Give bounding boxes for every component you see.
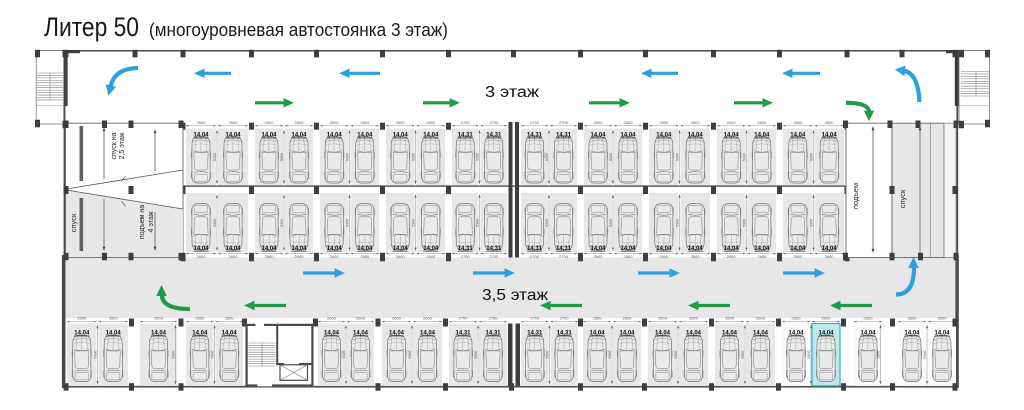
svg-text:14,31: 14,31 — [557, 331, 573, 337]
svg-text:14,31: 14,31 — [486, 133, 502, 139]
svg-text:5300: 5300 — [213, 153, 217, 161]
svg-text:5300: 5300 — [609, 219, 613, 227]
svg-text:14,04: 14,04 — [656, 246, 672, 252]
svg-text:5300: 5300 — [545, 153, 549, 161]
svg-text:14,04: 14,04 — [74, 331, 90, 337]
svg-text:14,31: 14,31 — [458, 246, 474, 252]
svg-text:2600: 2600 — [727, 120, 737, 125]
svg-text:2600: 2600 — [109, 316, 119, 321]
svg-text:2600: 2600 — [864, 316, 874, 321]
svg-text:14,04: 14,04 — [655, 331, 671, 337]
svg-text:5300: 5300 — [743, 219, 747, 227]
svg-text:3 этаж: 3 этаж — [485, 84, 540, 101]
svg-text:5300: 5300 — [546, 351, 550, 359]
svg-text:2600: 2600 — [756, 316, 766, 321]
svg-text:14,04: 14,04 — [327, 133, 343, 139]
svg-text:14,04: 14,04 — [688, 246, 704, 252]
svg-text:2600: 2600 — [593, 316, 603, 321]
svg-text:2600: 2600 — [727, 254, 737, 259]
svg-text:5300: 5300 — [172, 351, 176, 359]
svg-text:14,31: 14,31 — [527, 133, 543, 139]
svg-text:5300: 5300 — [94, 351, 98, 359]
svg-text:14,31: 14,31 — [556, 133, 572, 139]
svg-text:2600: 2600 — [757, 254, 767, 259]
svg-text:14,04: 14,04 — [724, 133, 740, 139]
svg-text:5300: 5300 — [342, 351, 346, 359]
svg-text:2600: 2600 — [658, 316, 668, 321]
svg-text:14,04: 14,04 — [619, 331, 635, 337]
svg-text:5300: 5300 — [346, 219, 350, 227]
svg-text:14,04: 14,04 — [818, 331, 834, 337]
svg-text:5300: 5300 — [474, 351, 478, 359]
svg-text:14,04: 14,04 — [291, 246, 307, 252]
svg-text:2700: 2700 — [461, 120, 471, 125]
svg-text:2700: 2700 — [530, 254, 540, 259]
svg-text:14,04: 14,04 — [357, 246, 373, 252]
svg-text:спуск: спуск — [898, 189, 907, 208]
svg-text:2600: 2600 — [330, 254, 340, 259]
svg-text:2600: 2600 — [825, 254, 835, 259]
svg-text:спуск на: спуск на — [111, 132, 118, 159]
svg-text:2600: 2600 — [594, 120, 604, 125]
svg-text:14,04: 14,04 — [620, 246, 636, 252]
svg-text:2700: 2700 — [489, 254, 499, 259]
svg-text:2600: 2600 — [725, 316, 735, 321]
svg-text:2600: 2600 — [265, 120, 275, 125]
svg-text:2600: 2600 — [77, 316, 87, 321]
svg-text:14,04: 14,04 — [754, 246, 770, 252]
svg-text:2700: 2700 — [559, 120, 569, 125]
svg-text:2700: 2700 — [459, 316, 469, 321]
svg-text:5300: 5300 — [676, 153, 680, 161]
svg-text:14,04: 14,04 — [151, 331, 167, 337]
svg-text:14,04: 14,04 — [324, 331, 340, 337]
svg-text:2600: 2600 — [623, 316, 633, 321]
svg-text:2600: 2600 — [659, 120, 669, 125]
svg-text:14,04: 14,04 — [934, 331, 950, 337]
svg-text:14,04: 14,04 — [291, 133, 307, 139]
svg-text:2600: 2600 — [691, 120, 701, 125]
svg-text:2600: 2600 — [356, 316, 366, 321]
svg-text:2600: 2600 — [426, 120, 436, 125]
svg-text:14,04: 14,04 — [193, 246, 209, 252]
svg-text:5300: 5300 — [674, 351, 678, 359]
svg-text:5300: 5300 — [280, 153, 284, 161]
svg-text:2600: 2600 — [691, 254, 701, 259]
svg-text:14,04: 14,04 — [193, 133, 209, 139]
svg-text:5300: 5300 — [743, 153, 747, 161]
svg-text:14,04: 14,04 — [327, 246, 343, 252]
svg-text:2600: 2600 — [659, 254, 669, 259]
svg-text:14,04: 14,04 — [788, 331, 804, 337]
svg-text:14,04: 14,04 — [423, 246, 439, 252]
svg-text:2600: 2600 — [265, 254, 275, 259]
svg-text:2600: 2600 — [624, 254, 634, 259]
svg-text:5300: 5300 — [810, 153, 814, 161]
svg-text:5300: 5300 — [923, 351, 927, 359]
svg-text:14,04: 14,04 — [753, 331, 769, 337]
svg-text:2600: 2600 — [396, 120, 406, 125]
svg-text:2700: 2700 — [559, 254, 569, 259]
svg-text:5300: 5300 — [609, 153, 613, 161]
svg-text:5300: 5300 — [412, 153, 416, 161]
svg-text:14,04: 14,04 — [590, 133, 606, 139]
svg-text:14,31: 14,31 — [527, 246, 543, 252]
svg-text:5300: 5300 — [476, 153, 480, 161]
svg-text:2600: 2600 — [908, 316, 918, 321]
svg-text:14,04: 14,04 — [822, 133, 838, 139]
svg-text:2600: 2600 — [392, 316, 402, 321]
svg-text:2600: 2600 — [295, 254, 305, 259]
svg-text:2600: 2600 — [229, 120, 239, 125]
svg-text:5300: 5300 — [211, 351, 215, 359]
svg-text:14,04: 14,04 — [261, 133, 277, 139]
svg-text:5300: 5300 — [807, 351, 811, 359]
svg-text:2600: 2600 — [225, 316, 235, 321]
svg-text:14,04: 14,04 — [790, 133, 806, 139]
svg-text:14,04: 14,04 — [420, 331, 436, 337]
svg-text:подъем: подъем — [851, 183, 860, 209]
svg-text:2700: 2700 — [530, 316, 540, 321]
svg-text:5300: 5300 — [810, 219, 814, 227]
svg-text:2600: 2600 — [330, 120, 340, 125]
svg-text:14,31: 14,31 — [455, 331, 471, 337]
svg-text:14,04: 14,04 — [904, 331, 920, 337]
svg-text:2600: 2600 — [423, 316, 433, 321]
svg-text:14,04: 14,04 — [722, 331, 738, 337]
svg-text:2700: 2700 — [489, 316, 499, 321]
svg-text:2600: 2600 — [757, 120, 767, 125]
svg-text:2600: 2600 — [793, 254, 803, 259]
svg-text:14,04: 14,04 — [423, 133, 439, 139]
svg-text:2600: 2600 — [327, 316, 337, 321]
svg-text:5300: 5300 — [676, 219, 680, 227]
svg-text:5300: 5300 — [741, 351, 745, 359]
svg-text:2700: 2700 — [489, 120, 499, 125]
svg-text:14,04: 14,04 — [192, 331, 208, 337]
svg-text:14,04: 14,04 — [589, 331, 605, 337]
svg-text:14,31: 14,31 — [458, 133, 474, 139]
svg-text:2600: 2600 — [938, 316, 948, 321]
svg-text:14,31: 14,31 — [556, 246, 572, 252]
svg-text:2600: 2600 — [594, 254, 604, 259]
svg-text:14,04: 14,04 — [261, 246, 277, 252]
svg-text:14,04: 14,04 — [686, 331, 702, 337]
svg-text:14,04: 14,04 — [393, 133, 409, 139]
svg-text:2600: 2600 — [154, 316, 164, 321]
svg-text:2600: 2600 — [792, 316, 802, 321]
svg-text:2600: 2600 — [396, 254, 406, 259]
svg-text:2600: 2600 — [197, 120, 207, 125]
svg-text:14,31: 14,31 — [486, 246, 502, 252]
svg-text:3,5 этаж: 3,5 этаж — [482, 287, 548, 304]
svg-text:2600: 2600 — [825, 120, 835, 125]
svg-text:14,04: 14,04 — [225, 246, 241, 252]
svg-text:2600: 2600 — [195, 316, 205, 321]
svg-text:14,31: 14,31 — [527, 331, 543, 337]
svg-text:14,31: 14,31 — [485, 331, 501, 337]
svg-text:2600: 2600 — [197, 254, 207, 259]
svg-text:5300: 5300 — [608, 351, 612, 359]
svg-text:14,04: 14,04 — [620, 133, 636, 139]
svg-text:5300: 5300 — [412, 219, 416, 227]
svg-text:(многоуровневая автостоянка 3: (многоуровневая автостоянка 3 этаж) — [149, 20, 448, 40]
svg-text:14,04: 14,04 — [353, 331, 369, 337]
svg-text:14,04: 14,04 — [106, 331, 122, 337]
svg-text:14,04: 14,04 — [393, 246, 409, 252]
svg-text:14,04: 14,04 — [656, 133, 672, 139]
svg-text:5300: 5300 — [408, 351, 412, 359]
svg-text:2600: 2600 — [624, 120, 634, 125]
svg-text:5300: 5300 — [346, 153, 350, 161]
svg-text:2600: 2600 — [229, 254, 239, 259]
svg-text:2600: 2600 — [793, 120, 803, 125]
svg-text:2600: 2600 — [426, 254, 436, 259]
svg-text:14,04: 14,04 — [590, 246, 606, 252]
svg-text:4 этаж: 4 этаж — [148, 211, 155, 232]
svg-text:14,04: 14,04 — [357, 133, 373, 139]
svg-text:2600: 2600 — [295, 120, 305, 125]
svg-text:5300: 5300 — [877, 351, 881, 359]
svg-text:2700: 2700 — [461, 254, 471, 259]
svg-text:14,04: 14,04 — [822, 246, 838, 252]
svg-text:2700: 2700 — [560, 316, 570, 321]
svg-text:14,04: 14,04 — [389, 331, 405, 337]
svg-text:2600: 2600 — [360, 254, 370, 259]
svg-text:14,04: 14,04 — [688, 133, 704, 139]
svg-text:14,04: 14,04 — [790, 246, 806, 252]
svg-text:2600: 2600 — [360, 120, 370, 125]
svg-text:подъем на: подъем на — [139, 205, 146, 239]
svg-text:5300: 5300 — [545, 219, 549, 227]
svg-text:5300: 5300 — [476, 219, 480, 227]
svg-text:14,04: 14,04 — [222, 331, 238, 337]
svg-text:2600: 2600 — [822, 316, 832, 321]
svg-text:14,04: 14,04 — [724, 246, 740, 252]
svg-text:14,04: 14,04 — [225, 133, 241, 139]
svg-text:5300: 5300 — [280, 219, 284, 227]
svg-text:2,5 этаж: 2,5 этаж — [119, 132, 126, 159]
svg-text:5300: 5300 — [213, 219, 217, 227]
svg-text:14,04: 14,04 — [754, 133, 770, 139]
svg-text:2600: 2600 — [689, 316, 699, 321]
svg-text:2700: 2700 — [530, 120, 540, 125]
svg-text:спуск: спуск — [69, 213, 78, 232]
svg-text:14,04: 14,04 — [860, 331, 876, 337]
svg-text:Литер 50: Литер 50 — [44, 12, 139, 42]
